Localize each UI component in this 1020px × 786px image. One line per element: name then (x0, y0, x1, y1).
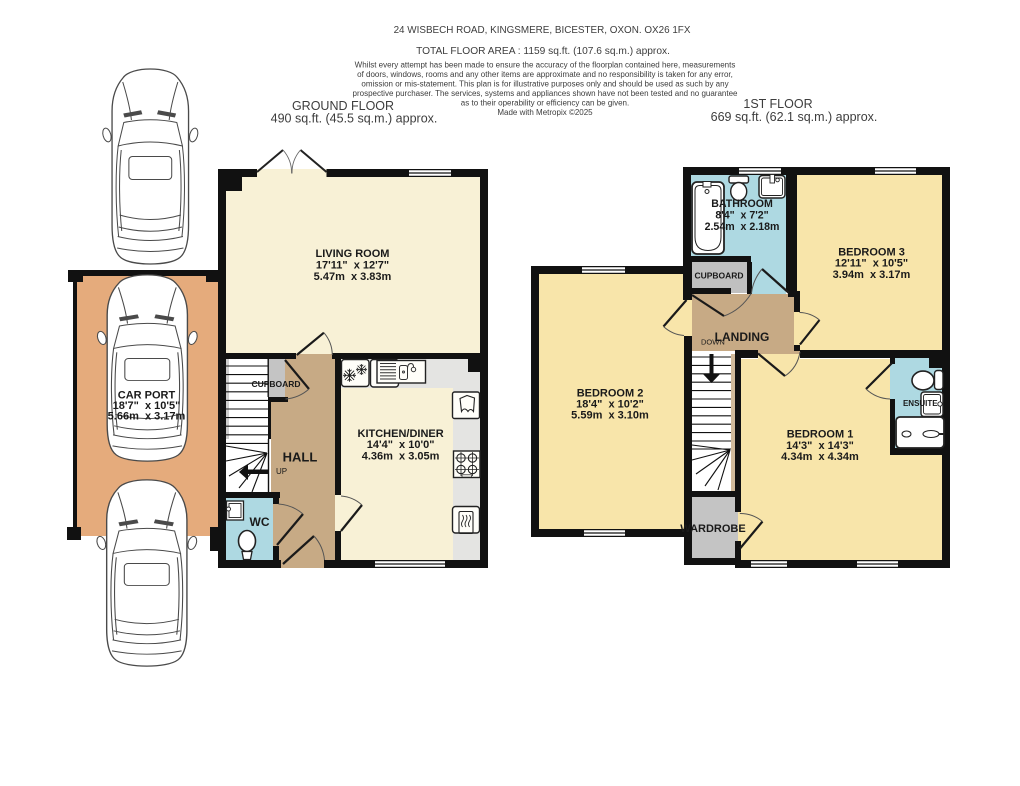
svg-text:LIVING ROOM: LIVING ROOM (316, 248, 390, 260)
svg-text:CUPBOARD: CUPBOARD (251, 379, 300, 389)
svg-text:4.34m x 4.34m: 4.34m x 4.34m (781, 451, 859, 463)
svg-text:of doors, windows, rooms and a: of doors, windows, rooms and any other i… (357, 70, 733, 79)
svg-text:omission or mis-statement. Thi: omission or mis-statement. This plan is … (361, 80, 728, 89)
svg-text:DOWN: DOWN (701, 338, 725, 347)
svg-text:4.36m x 3.05m: 4.36m x 3.05m (362, 450, 440, 462)
svg-text:ENSUITE: ENSUITE (903, 399, 938, 408)
svg-text:24 WISBECH ROAD, KINGSMERE, BI: 24 WISBECH ROAD, KINGSMERE, BICESTER, OX… (394, 25, 691, 36)
svg-text:5.47m x 3.83m: 5.47m x 3.83m (314, 271, 392, 283)
svg-text:5.59m x 3.10m: 5.59m x 3.10m (571, 410, 649, 422)
svg-text:3.94m x 3.17m: 3.94m x 3.17m (833, 269, 911, 281)
svg-text:UP: UP (276, 467, 287, 476)
svg-text:CUPBOARD: CUPBOARD (694, 271, 743, 281)
svg-text:5.66m x 3.17m: 5.66m x 3.17m (108, 411, 186, 423)
svg-text:17'11" x 12'7": 17'11" x 12'7" (316, 260, 389, 272)
svg-text:18'4" x 10'2": 18'4" x 10'2" (576, 398, 644, 410)
svg-text:14'3" x 14'3": 14'3" x 14'3" (786, 440, 854, 452)
svg-text:8'4" x 7'2": 8'4" x 7'2" (715, 210, 768, 222)
svg-text:12'11" x 10'5": 12'11" x 10'5" (835, 258, 908, 270)
svg-text:669 sq.ft. (62.1 sq.m.) approx: 669 sq.ft. (62.1 sq.m.) approx. (711, 110, 878, 124)
svg-text:2.54m x 2.18m: 2.54m x 2.18m (705, 221, 780, 233)
svg-text:490 sq.ft. (45.5 sq.m.) approx: 490 sq.ft. (45.5 sq.m.) approx. (271, 112, 438, 126)
svg-text:Whilst every attempt has been: Whilst every attempt has been made to en… (355, 61, 736, 70)
svg-text:Made with Metropix ©2025: Made with Metropix ©2025 (497, 108, 593, 117)
svg-text:prospective purchaser. The ser: prospective purchaser. The services, sys… (353, 89, 739, 98)
svg-text:WC: WC (250, 515, 270, 529)
svg-text:BATHROOM: BATHROOM (711, 198, 773, 210)
svg-text:BEDROOM 1: BEDROOM 1 (787, 429, 854, 441)
svg-text:WARDROBE: WARDROBE (680, 523, 745, 535)
svg-text:as to their operability or eff: as to their operability or efficiency ca… (461, 99, 629, 108)
svg-text:1ST FLOOR: 1ST FLOOR (743, 97, 812, 111)
svg-text:BEDROOM 3: BEDROOM 3 (838, 246, 905, 258)
svg-text:TOTAL FLOOR AREA : 1159 sq.ft.: TOTAL FLOOR AREA : 1159 sq.ft. (107.6 sq… (416, 46, 670, 57)
svg-text:HALL: HALL (283, 449, 318, 464)
